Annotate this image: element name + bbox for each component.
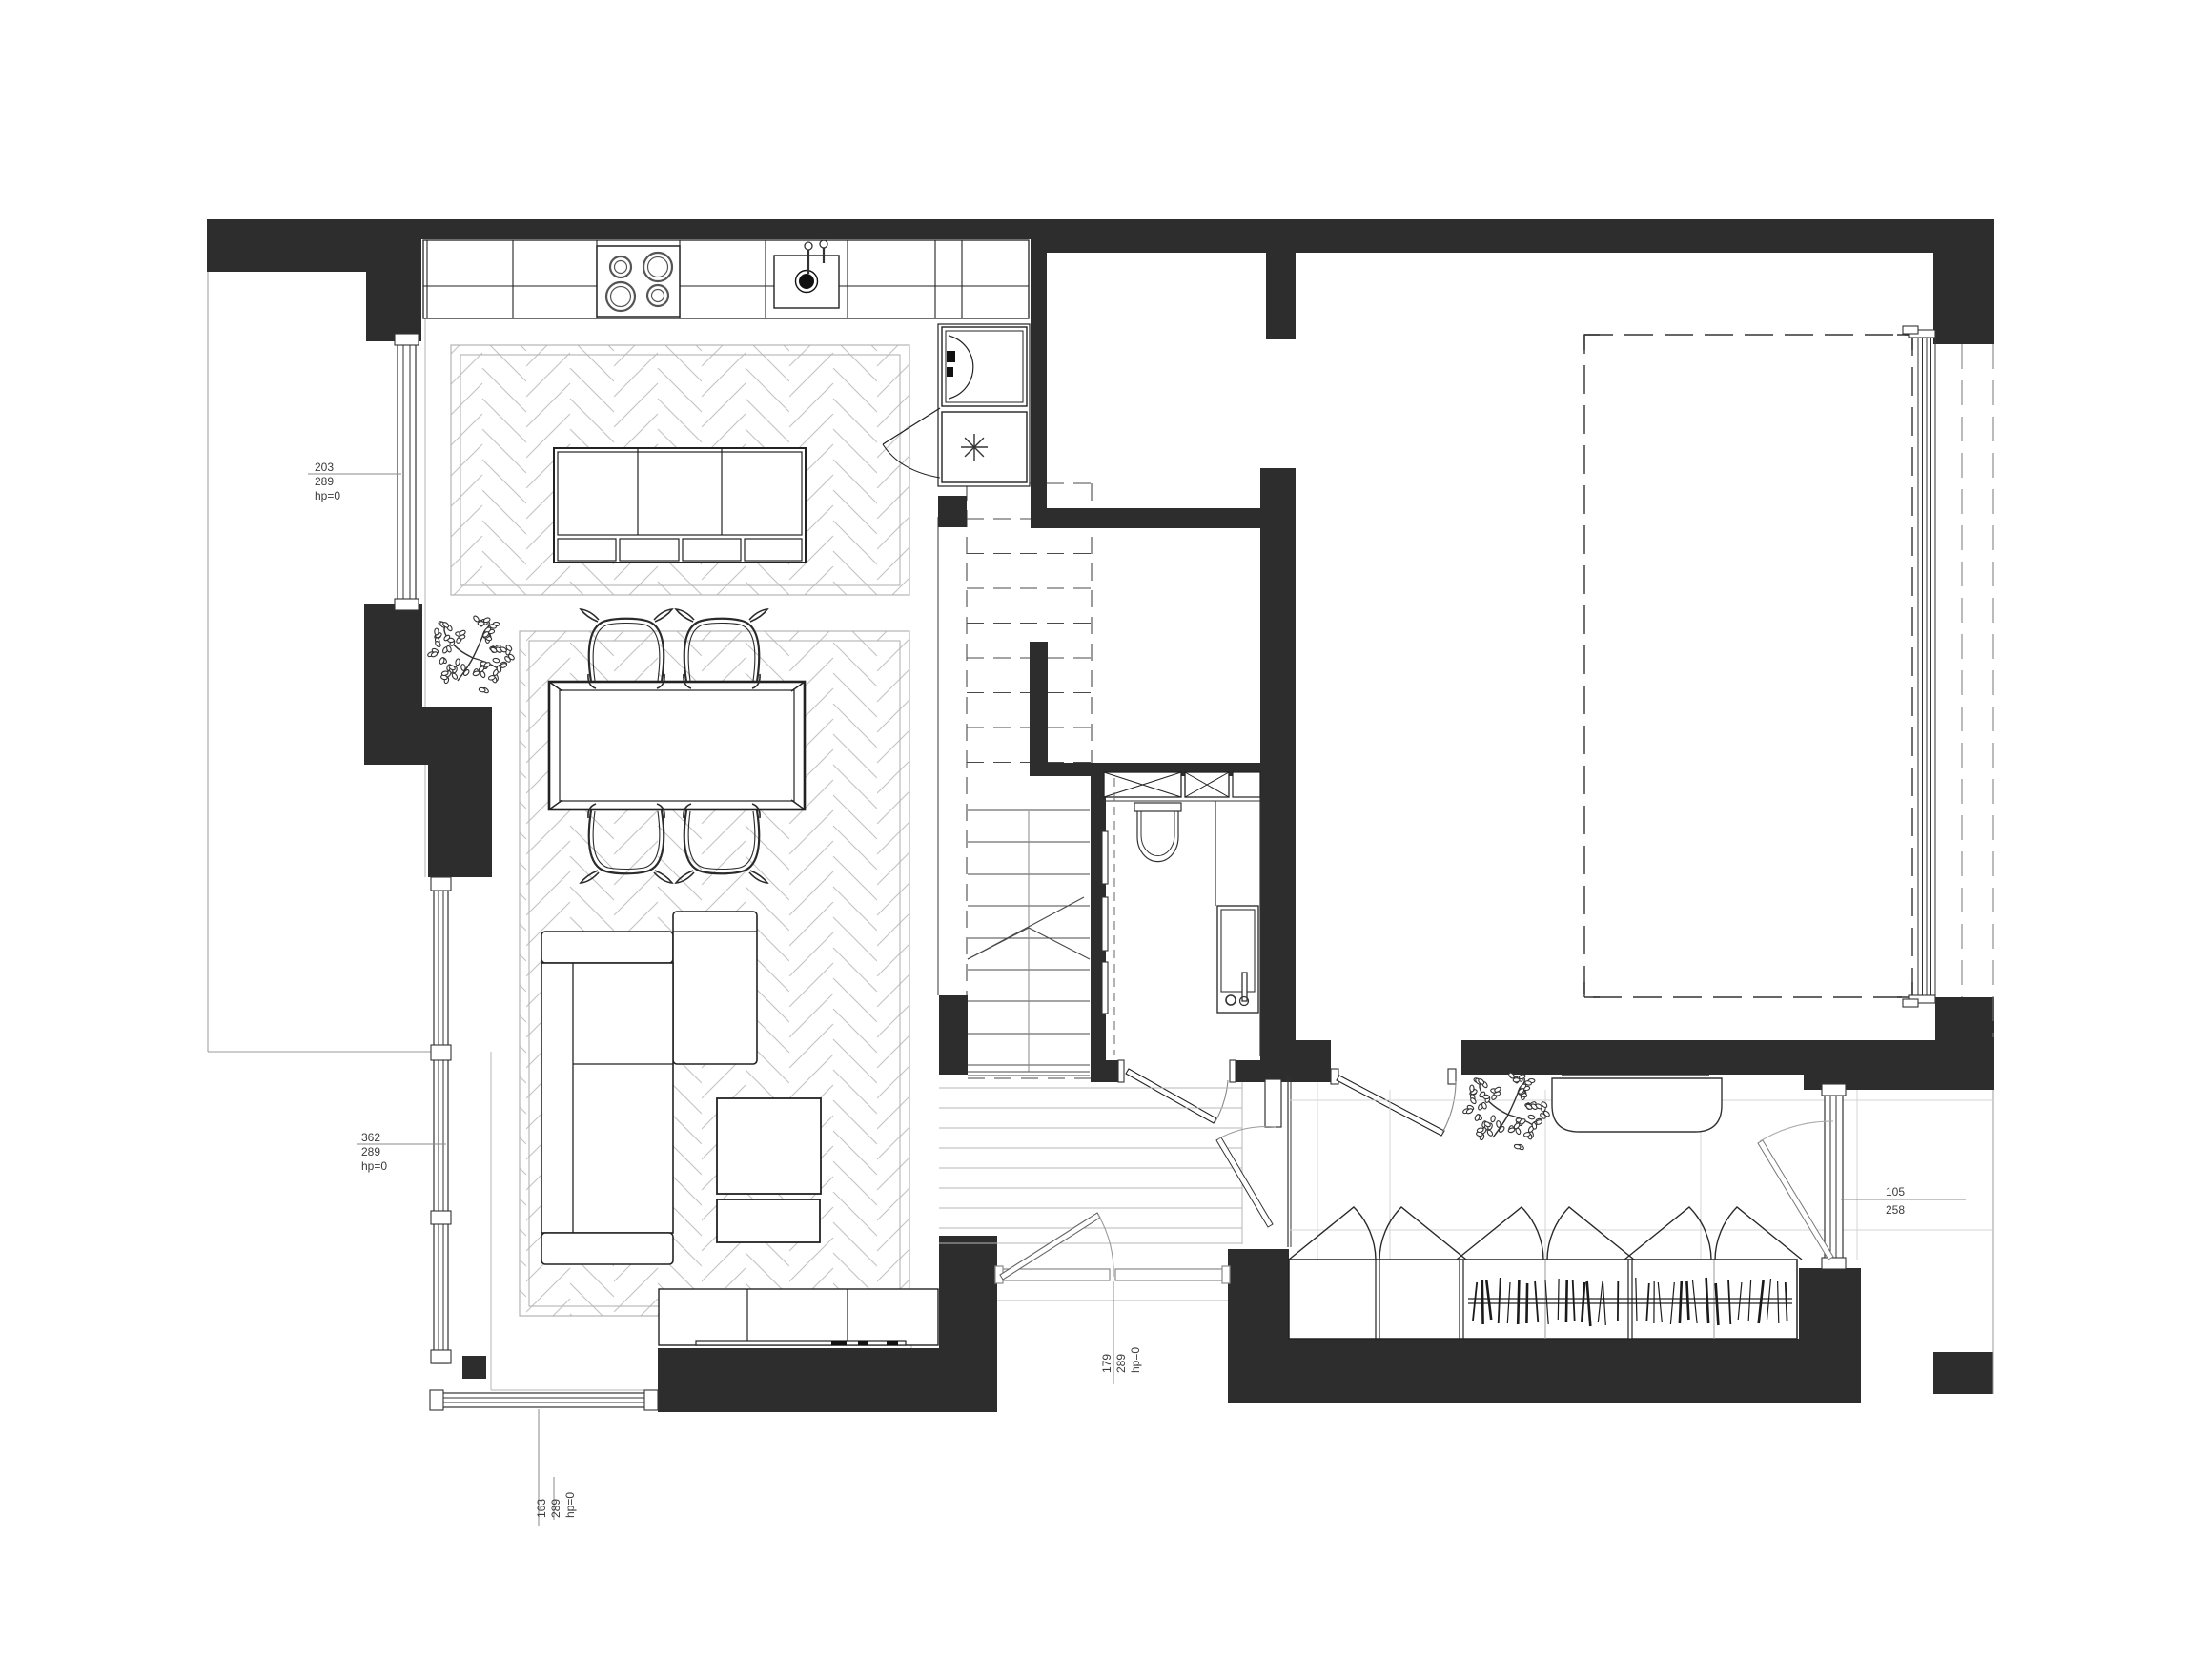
svg-text:hp=0: hp=0: [1129, 1347, 1142, 1373]
svg-text:203: 203: [315, 461, 334, 474]
svg-text:hp=0: hp=0: [315, 489, 340, 502]
svg-text:179: 179: [1100, 1354, 1113, 1373]
svg-text:289: 289: [549, 1499, 562, 1518]
svg-text:hp=0: hp=0: [563, 1492, 577, 1518]
svg-text:163: 163: [535, 1499, 548, 1518]
svg-text:362: 362: [361, 1131, 380, 1144]
svg-text:105: 105: [1886, 1185, 1905, 1199]
svg-text:289: 289: [1114, 1354, 1128, 1373]
svg-text:289: 289: [361, 1145, 380, 1158]
svg-text:258: 258: [1886, 1203, 1905, 1217]
svg-text:hp=0: hp=0: [361, 1159, 387, 1173]
svg-text:289: 289: [315, 475, 334, 488]
